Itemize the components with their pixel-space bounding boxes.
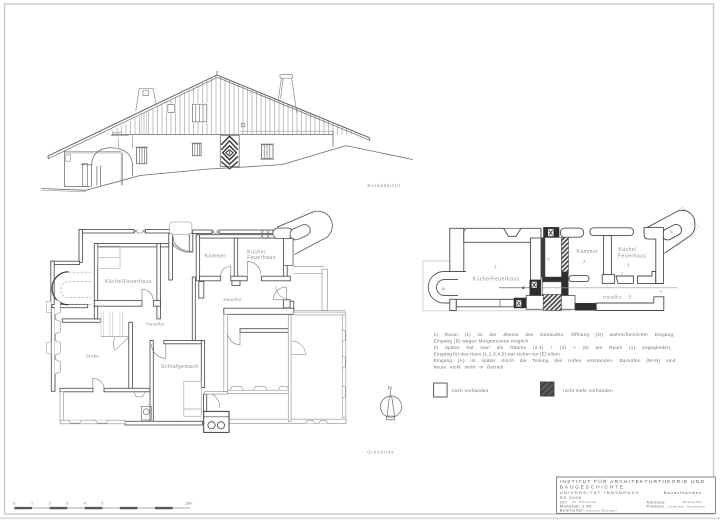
svg-text:Eingang für das Haus (1,2,3,4,: Eingang für das Haus (1,2,3,4,5) war sic… bbox=[434, 352, 561, 357]
svg-text:4: 4 bbox=[84, 502, 86, 506]
svg-text:Bearbeiter:: Bearbeiter: bbox=[560, 508, 585, 513]
svg-text:Eingang (B) wegen Morgensonne: Eingang (B) wegen Morgensonne möglich bbox=[434, 339, 529, 344]
svg-text:N: N bbox=[388, 386, 392, 392]
svg-text:Küche/Feuerhaus: Küche/Feuerhaus bbox=[105, 279, 152, 285]
svg-text:5: 5 bbox=[629, 295, 632, 300]
svg-text:Kammer: Kammer bbox=[577, 249, 599, 255]
svg-text:Feuerhaus: Feuerhaus bbox=[618, 253, 646, 259]
svg-text:Kammer: Kammer bbox=[205, 253, 227, 259]
svg-text:INSTITUT FÜR ARCHITEKTURTHEORI: INSTITUT FÜR ARCHITEKTURTHEORIE UND bbox=[560, 478, 706, 485]
svg-text:N: N bbox=[670, 229, 673, 234]
svg-text:Hausflur: Hausflur bbox=[147, 321, 166, 326]
svg-text:Nordansicht: Nordansicht bbox=[368, 183, 401, 188]
svg-text:M: M bbox=[442, 286, 446, 291]
svg-text:Hausflur: Hausflur bbox=[603, 295, 622, 300]
svg-text:1: 1 bbox=[31, 502, 33, 506]
svg-text:Feuerhaus: Feuerhaus bbox=[247, 255, 275, 261]
svg-text:Hausflur: Hausflur bbox=[224, 297, 243, 302]
svg-text:Bauaufnahmen: Bauaufnahmen bbox=[664, 490, 703, 495]
svg-text:Schlafgemach: Schlafgemach bbox=[161, 364, 199, 370]
svg-text:1: 1 bbox=[621, 271, 623, 275]
svg-text:2) Später hat man die Räume (2: 2) Später hat man die Räume (2,4) + (3) … bbox=[434, 345, 672, 350]
svg-text:heute nicht mehr in Betrieb: heute nicht mehr in Betrieb bbox=[434, 364, 504, 369]
svg-text:0: 0 bbox=[13, 502, 15, 506]
svg-text:Eingang (A) ist später durch d: Eingang (A) ist später durch die Teilung… bbox=[434, 358, 676, 363]
svg-text:5: 5 bbox=[101, 502, 103, 506]
svg-text:Küche/: Küche/ bbox=[619, 247, 638, 253]
svg-text:E: E bbox=[660, 290, 663, 294]
svg-text:Stube: Stube bbox=[86, 353, 99, 358]
svg-text:Joachim Moroder: Joachim Moroder bbox=[585, 508, 617, 512]
svg-text:3: 3 bbox=[66, 502, 68, 506]
svg-text:nicht mehr vorhanden: nicht mehr vorhanden bbox=[563, 388, 613, 393]
svg-text:Grundriss: Grundriss bbox=[367, 449, 394, 454]
svg-text:Schnitte, Ansichten: Schnitte, Ansichten bbox=[669, 504, 706, 508]
svg-text:Küche/Feuerhaus: Küche/Feuerhaus bbox=[473, 277, 520, 283]
svg-text:noch vorhanden: noch vorhanden bbox=[452, 388, 489, 393]
svg-text:1: 1 bbox=[495, 265, 498, 270]
svg-text:2: 2 bbox=[583, 259, 586, 264]
svg-text:1) Raum (1) ist der älteste de: 1) Raum (1) ist der älteste des Gebäudes… bbox=[434, 331, 675, 337]
svg-text:2: 2 bbox=[49, 502, 51, 506]
svg-text:Planbez.:: Planbez.: bbox=[647, 504, 668, 509]
svg-text:3: 3 bbox=[627, 262, 630, 267]
svg-text:4: 4 bbox=[547, 256, 550, 261]
svg-text:10m: 10m bbox=[185, 502, 192, 506]
